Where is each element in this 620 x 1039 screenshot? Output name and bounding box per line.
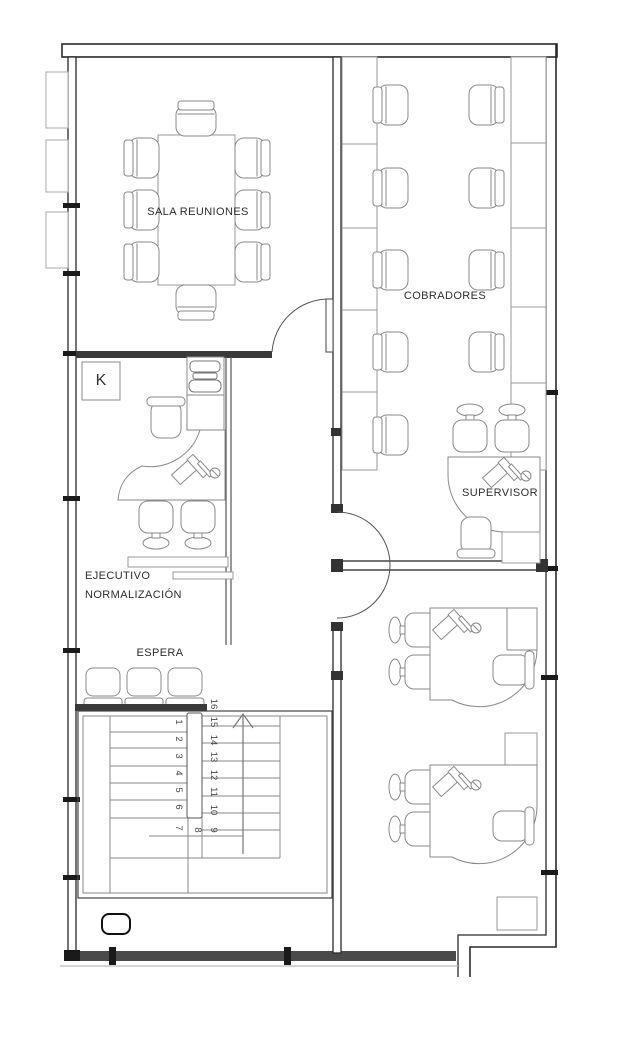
stair-step-number: 9 — [207, 824, 219, 836]
file-cabinet — [497, 897, 537, 930]
room-label-sala-reuniones: SALA REUNIONES — [118, 206, 278, 218]
stair-step-number: 11 — [207, 786, 219, 798]
room-label-ejecutivo-line2: NORMALIZACIÓN — [85, 589, 182, 601]
workstation-1 — [389, 608, 537, 707]
meeting-room-south-wall — [76, 351, 272, 358]
work-chair — [373, 332, 408, 372]
work-chair — [469, 332, 504, 372]
stair-step-number: 7 — [172, 822, 184, 834]
printer-icon — [189, 361, 221, 392]
stair-step-number: 1 — [172, 716, 184, 728]
room-label-cobradores: COBRADORES — [385, 290, 505, 302]
left-wall — [68, 57, 76, 960]
work-chair — [469, 85, 504, 125]
visitor-chair — [139, 501, 173, 549]
central-wall-upper — [333, 57, 341, 512]
floor-plan: K SALA REUNIONES COBRADORES SUPERVISOR E… — [0, 0, 620, 1039]
credenza — [128, 557, 228, 567]
work-chair — [373, 250, 408, 290]
stair-direction-arrow — [233, 714, 253, 854]
office-chair — [493, 807, 534, 845]
stair-step-number: 15 — [207, 716, 219, 728]
zone-supervisor — [448, 404, 540, 563]
top-wall — [62, 44, 557, 57]
work-chair — [373, 85, 408, 125]
desk-return — [505, 733, 537, 765]
stair-step-number: 10 — [207, 804, 219, 816]
k-marker-label: K — [82, 362, 120, 400]
work-chair — [373, 415, 408, 455]
wall-tick — [331, 428, 343, 436]
visitor-chair — [453, 404, 487, 452]
stair-step-number: 4 — [172, 767, 184, 779]
conference-chair — [235, 138, 270, 178]
room-label-ejecutivo-line1: EJECUTIVO — [85, 570, 150, 582]
meeting-room-door-leaf — [326, 299, 333, 352]
meeting-room-door-arc — [272, 299, 329, 352]
stair-step-number: 13 — [207, 751, 219, 763]
room-label-espera: ESPERA — [120, 647, 200, 659]
stair-step-number: 12 — [207, 769, 219, 781]
waiting-chair — [84, 668, 122, 708]
stair-top-wall — [75, 704, 207, 711]
bottom-wall — [68, 951, 456, 961]
wall-end-cap — [331, 622, 343, 631]
work-chair — [469, 250, 504, 290]
work-chair — [469, 168, 504, 208]
waste-bin — [102, 914, 130, 934]
conference-chair — [176, 285, 216, 320]
stair-enclosure-outer — [78, 711, 332, 898]
desk-counter-left — [342, 57, 377, 470]
stair-step-number: 6 — [172, 801, 184, 813]
stair-step-number: 2 — [172, 733, 184, 745]
stair-step-number: 5 — [172, 784, 184, 796]
conference-chair — [124, 242, 159, 282]
misc-fixtures — [102, 897, 537, 934]
office-chair — [457, 517, 495, 558]
floor-plan-drawing — [0, 0, 620, 1039]
stair-step-number: 16 — [207, 698, 219, 710]
stair-step-number: 8 — [191, 824, 203, 836]
stair-center-rail — [187, 713, 202, 818]
desk-return — [502, 532, 540, 563]
executive-desk — [118, 430, 225, 500]
work-chair — [373, 168, 408, 208]
conference-chair — [176, 101, 216, 136]
office-chair — [493, 651, 534, 689]
waiting-chair — [125, 668, 163, 708]
wall-tick — [331, 671, 343, 680]
office-chair — [147, 397, 185, 438]
room-label-supervisor: SUPERVISOR — [448, 487, 552, 499]
waiting-chair — [166, 668, 204, 708]
wall-end-cap — [331, 559, 343, 572]
credenza-shelf — [173, 572, 233, 579]
visitor-chair — [495, 404, 529, 452]
conference-chair — [124, 138, 159, 178]
stair-step-number: 14 — [207, 734, 219, 746]
zone-espera — [84, 668, 204, 708]
stairwell — [75, 704, 332, 898]
stair-step-number: 3 — [172, 750, 184, 762]
conference-chair — [235, 242, 270, 282]
workstation-2 — [389, 733, 537, 864]
exterior-windows — [46, 72, 68, 268]
visitor-chair — [181, 501, 215, 549]
